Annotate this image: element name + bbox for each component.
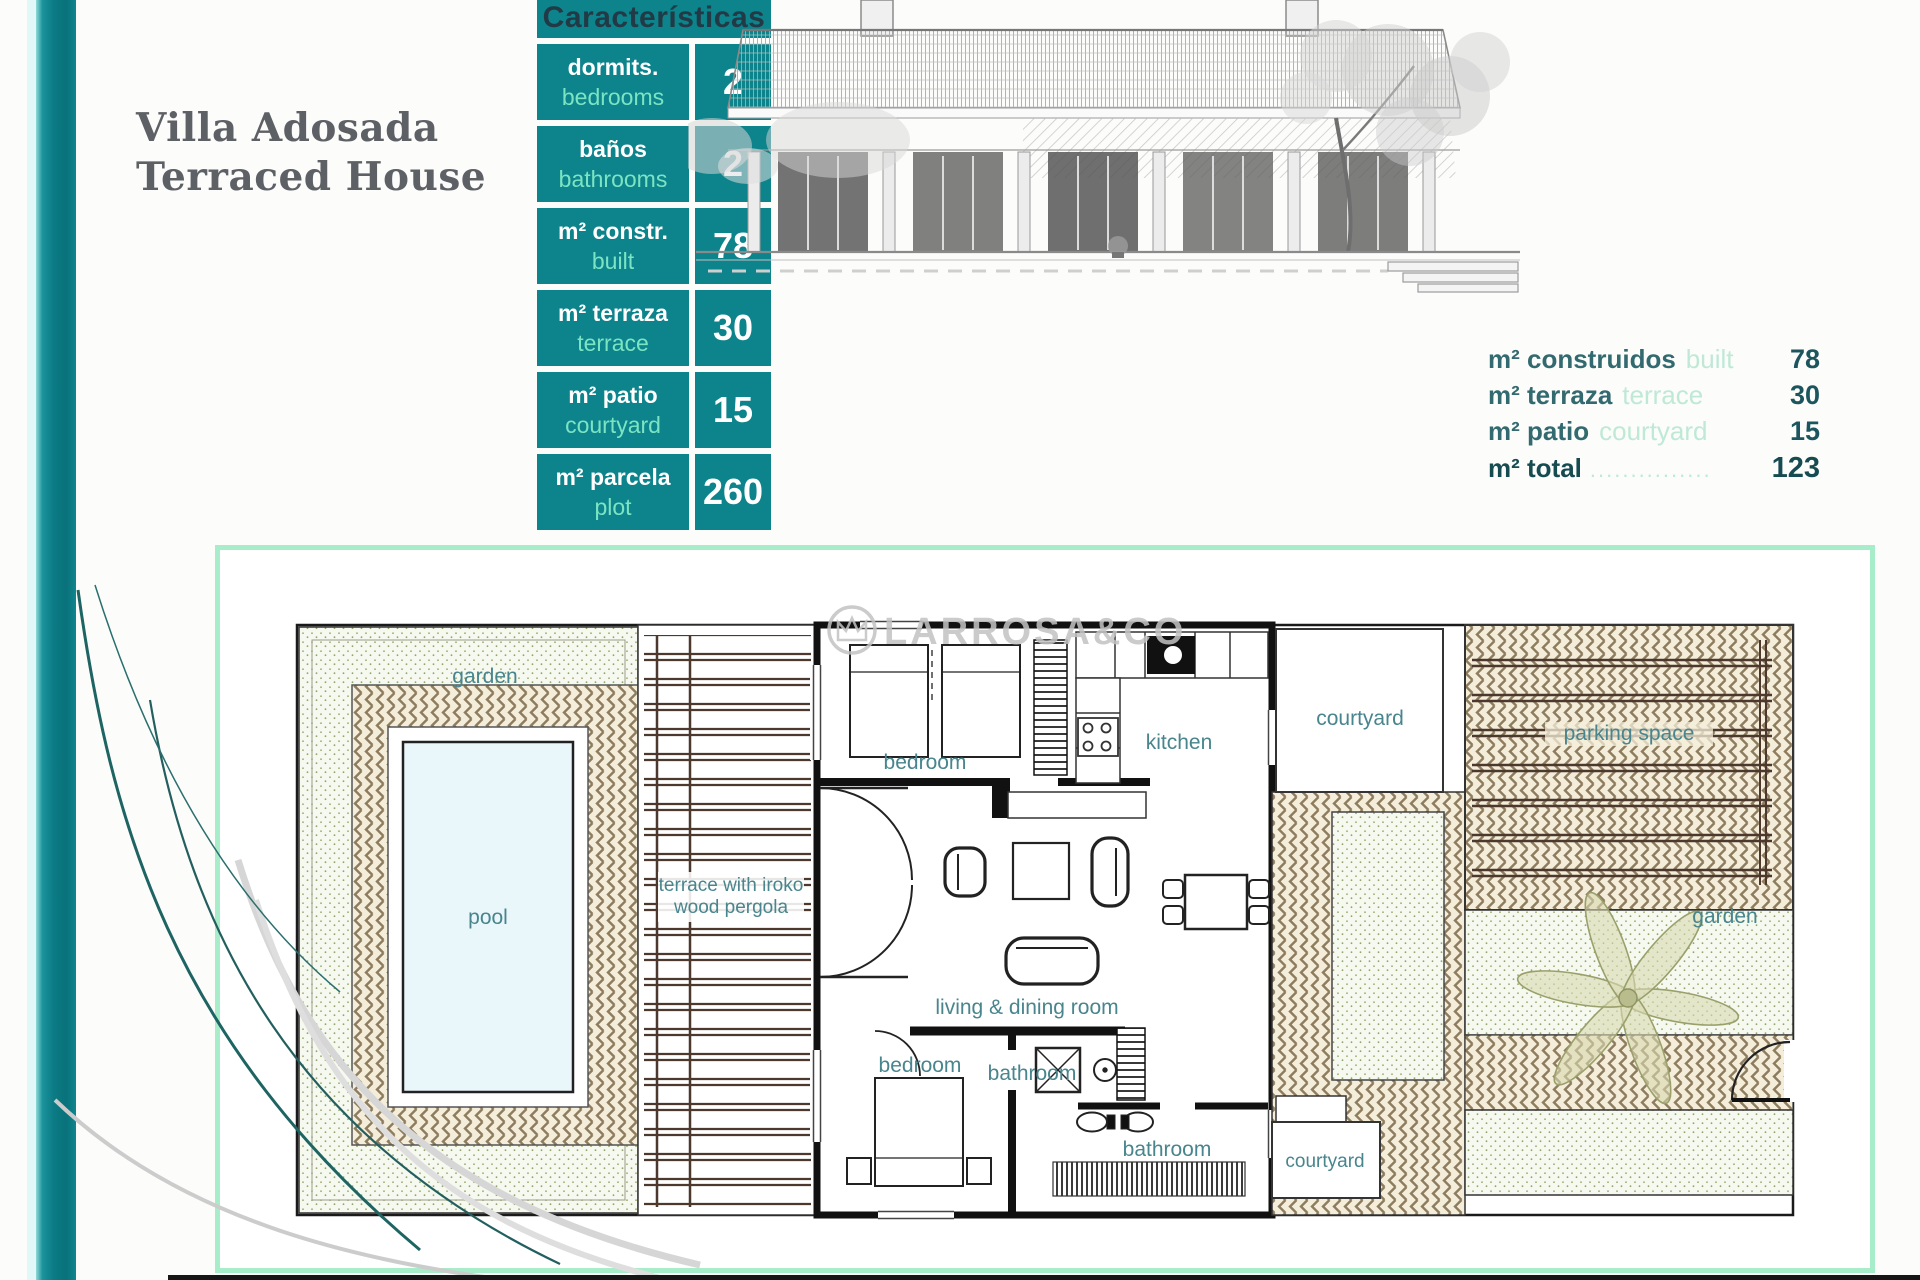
summary-label-en: terrace [1622, 380, 1703, 411]
bedroom-bottom-label: bedroom [879, 1054, 962, 1077]
terrace-pergola: terrace with iroko wood pergola [638, 625, 817, 1215]
stove [1078, 718, 1118, 756]
summary-row: m² patio courtyard 15 [1488, 416, 1820, 452]
bedroom-top-label: bedroom [884, 751, 967, 774]
row-label-en: courtyard [565, 410, 661, 440]
garden-right-lower [1465, 1110, 1793, 1195]
summary-label-es: m² patio [1488, 416, 1589, 447]
brochure-page: { "title": { "line1": "Villa Adosada", "… [0, 0, 1920, 1280]
house: bedroom kitchen living & dining room bed… [810, 618, 1279, 1222]
kitchen-island [1008, 792, 1146, 818]
floor-plan-panel: garden pool terrace with iroko wood perg… [215, 545, 1875, 1273]
summary-value: 123 [1772, 452, 1820, 485]
page-title-line1: Villa Adosada [136, 104, 486, 153]
house-facade-sketch [688, 0, 1528, 302]
summary-label-en: built [1686, 344, 1734, 375]
row-label-es: m² patio [568, 380, 657, 410]
gate-opening [1784, 1040, 1796, 1102]
row-label-en: terrace [577, 328, 649, 358]
row-label-en: bedrooms [562, 82, 664, 112]
summary-value: 30 [1790, 380, 1820, 411]
row-label-es: m² constr. [558, 216, 668, 246]
floor-plan: garden pool terrace with iroko wood perg… [220, 550, 1870, 1268]
page-title-line2: Terraced House [136, 153, 486, 202]
courtyard-top-label: courtyard [1316, 707, 1404, 730]
row-label-en: plot [594, 492, 631, 522]
parking-pergola-beams [1472, 638, 1772, 888]
garden-left-label: garden [452, 665, 517, 688]
summary-row: m² construidos built 78 [1488, 344, 1820, 380]
wardrobe [1034, 640, 1067, 775]
summary-value: 15 [1790, 416, 1820, 447]
row-label-en: built [592, 246, 634, 276]
wardrobe [1117, 1028, 1145, 1100]
page-title: Villa Adosada Terraced House [136, 104, 486, 202]
garden-patch [1332, 812, 1444, 1080]
summary-value: 78 [1790, 344, 1820, 375]
kitchen-label: kitchen [1146, 731, 1213, 754]
area-summary: m² construidos built 78 m² terraza terra… [1488, 344, 1820, 488]
steps [1388, 262, 1518, 292]
living-label: living & dining room [935, 996, 1118, 1019]
bottom-edge-bar [168, 1275, 1920, 1280]
bush [688, 102, 910, 184]
terrace-label-line1: terrace with iroko [659, 875, 804, 896]
garden-pool-zone: garden pool [299, 627, 638, 1213]
row-label-en: bathrooms [559, 164, 668, 194]
row-label-es: baños [579, 134, 647, 164]
row-value: 260 [695, 454, 771, 530]
watermark-text: LARROSA&CO [884, 611, 1186, 653]
row-label-es: m² terraza [558, 298, 668, 328]
row-label-es: m² parcela [555, 462, 670, 492]
pool-label: pool [468, 906, 508, 929]
table-row: m² patio courtyard 15 [537, 372, 771, 448]
summary-label-es: m² construidos [1488, 344, 1676, 375]
summary-label-es: m² total [1488, 453, 1582, 484]
left-accent-stripe [27, 0, 36, 1280]
parking-label: parking space [1564, 722, 1695, 745]
table-row: m² parcela plot 260 [537, 454, 771, 530]
teal-side-bar [36, 0, 76, 1280]
courtyard-zone: courtyard courtyard [1272, 629, 1465, 1215]
summary-label-en: courtyard [1599, 416, 1707, 447]
summary-label-es: m² terraza [1488, 380, 1612, 411]
terrace-label-line2: wood pergola [673, 897, 789, 918]
parking-garden-zone: parking space garden [1465, 625, 1796, 1195]
bathroom-second-label: bathroom [1123, 1138, 1212, 1161]
row-label-es: dormits. [568, 52, 659, 82]
bathroom-main-label: bathroom [988, 1062, 1077, 1085]
courtyard-bottom-label: courtyard [1285, 1151, 1364, 1172]
summary-row-total: m² total ............... 123 [1488, 452, 1820, 488]
summary-row: m² terraza terrace 30 [1488, 380, 1820, 416]
row-value: 15 [695, 372, 771, 448]
garden-right-label: garden [1692, 905, 1757, 928]
dotted-leader: ............... [1590, 457, 1764, 483]
